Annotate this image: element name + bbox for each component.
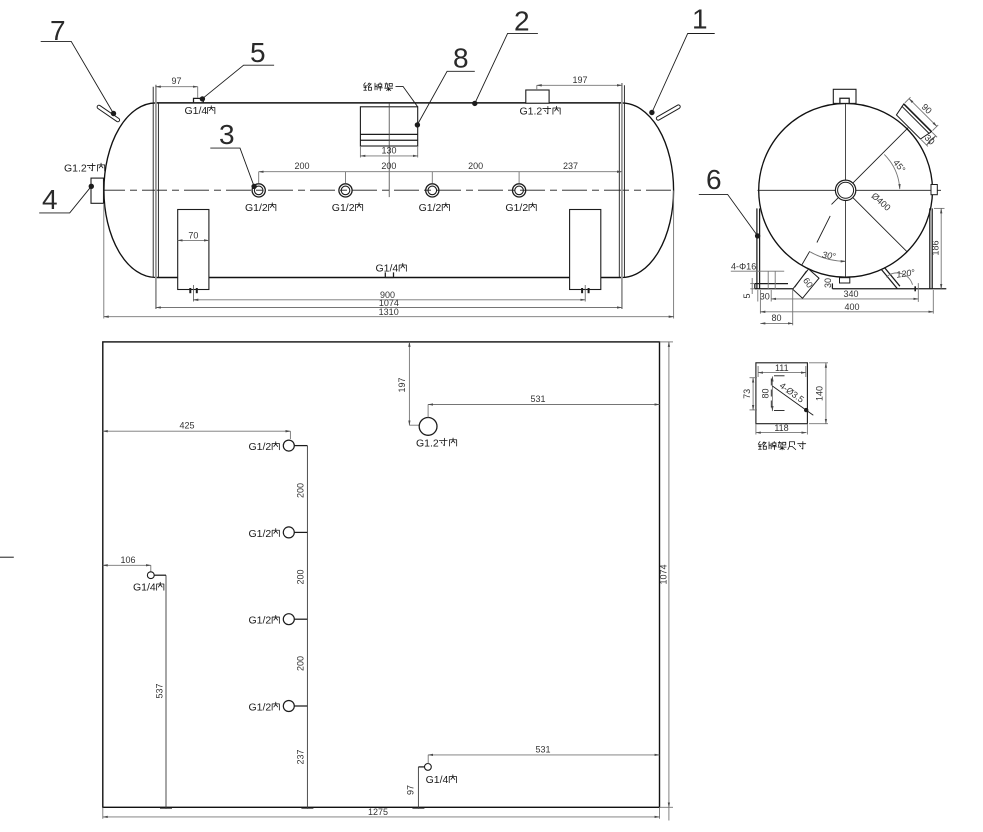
svg-text:425: 425 bbox=[179, 421, 194, 431]
svg-text:186: 186 bbox=[931, 240, 941, 255]
svg-text:G1.2: G1.2 bbox=[416, 437, 439, 449]
svg-text:5: 5 bbox=[250, 37, 266, 68]
svg-text:200: 200 bbox=[381, 161, 396, 171]
svg-text:70: 70 bbox=[188, 231, 198, 241]
svg-text:400: 400 bbox=[844, 302, 859, 312]
svg-text:200: 200 bbox=[296, 656, 306, 671]
svg-text:4: 4 bbox=[42, 184, 58, 215]
svg-text:140: 140 bbox=[815, 386, 825, 401]
svg-text:73: 73 bbox=[742, 389, 752, 399]
svg-text:531: 531 bbox=[535, 744, 550, 754]
svg-text:1310: 1310 bbox=[379, 307, 399, 317]
svg-text:237: 237 bbox=[563, 161, 578, 171]
svg-text:537: 537 bbox=[155, 683, 165, 698]
svg-text:118: 118 bbox=[774, 423, 788, 433]
svg-text:G1.2: G1.2 bbox=[520, 106, 543, 118]
svg-text:200: 200 bbox=[296, 483, 306, 498]
svg-text:G1/2: G1/2 bbox=[249, 701, 272, 713]
svg-text:G1/2: G1/2 bbox=[249, 528, 272, 540]
svg-text:G1/2: G1/2 bbox=[249, 441, 272, 453]
svg-text:6: 6 bbox=[706, 164, 722, 195]
svg-text:130: 130 bbox=[381, 146, 396, 156]
svg-text:200: 200 bbox=[468, 161, 483, 171]
svg-text:197: 197 bbox=[397, 377, 407, 392]
svg-text:G1/4: G1/4 bbox=[376, 263, 399, 275]
svg-text:30°: 30° bbox=[821, 250, 836, 262]
svg-text:30: 30 bbox=[823, 278, 833, 288]
svg-text:531: 531 bbox=[530, 394, 545, 404]
svg-text:1074: 1074 bbox=[658, 564, 668, 584]
svg-text:G1/2: G1/2 bbox=[245, 202, 268, 214]
svg-text:G1/4: G1/4 bbox=[426, 774, 449, 786]
svg-text:G1/2: G1/2 bbox=[505, 202, 528, 214]
svg-text:97: 97 bbox=[406, 785, 416, 795]
svg-text:4-Φ16: 4-Φ16 bbox=[731, 261, 756, 271]
svg-text:G1/2: G1/2 bbox=[249, 615, 272, 627]
svg-text:G1/4: G1/4 bbox=[185, 105, 208, 117]
svg-text:2: 2 bbox=[514, 6, 530, 37]
svg-text:1275: 1275 bbox=[368, 807, 388, 817]
svg-text:G1/2: G1/2 bbox=[332, 202, 355, 214]
svg-text:8: 8 bbox=[453, 43, 469, 74]
svg-text:G1/4: G1/4 bbox=[133, 582, 156, 594]
svg-text:340: 340 bbox=[843, 289, 858, 299]
svg-text:106: 106 bbox=[120, 555, 135, 565]
svg-text:111: 111 bbox=[775, 363, 789, 373]
svg-text:5: 5 bbox=[742, 293, 752, 298]
svg-text:G1/2: G1/2 bbox=[419, 202, 442, 214]
svg-text:3: 3 bbox=[219, 119, 235, 150]
svg-text:30: 30 bbox=[760, 292, 770, 302]
svg-text:80: 80 bbox=[760, 388, 770, 398]
svg-text:97: 97 bbox=[171, 76, 181, 86]
svg-text:1: 1 bbox=[692, 3, 708, 34]
svg-text:200: 200 bbox=[294, 161, 309, 171]
svg-text:G1.2: G1.2 bbox=[64, 163, 87, 175]
svg-text:80: 80 bbox=[771, 313, 781, 323]
svg-text:197: 197 bbox=[572, 75, 587, 85]
svg-text:237: 237 bbox=[296, 749, 306, 764]
svg-text:200: 200 bbox=[296, 569, 306, 584]
